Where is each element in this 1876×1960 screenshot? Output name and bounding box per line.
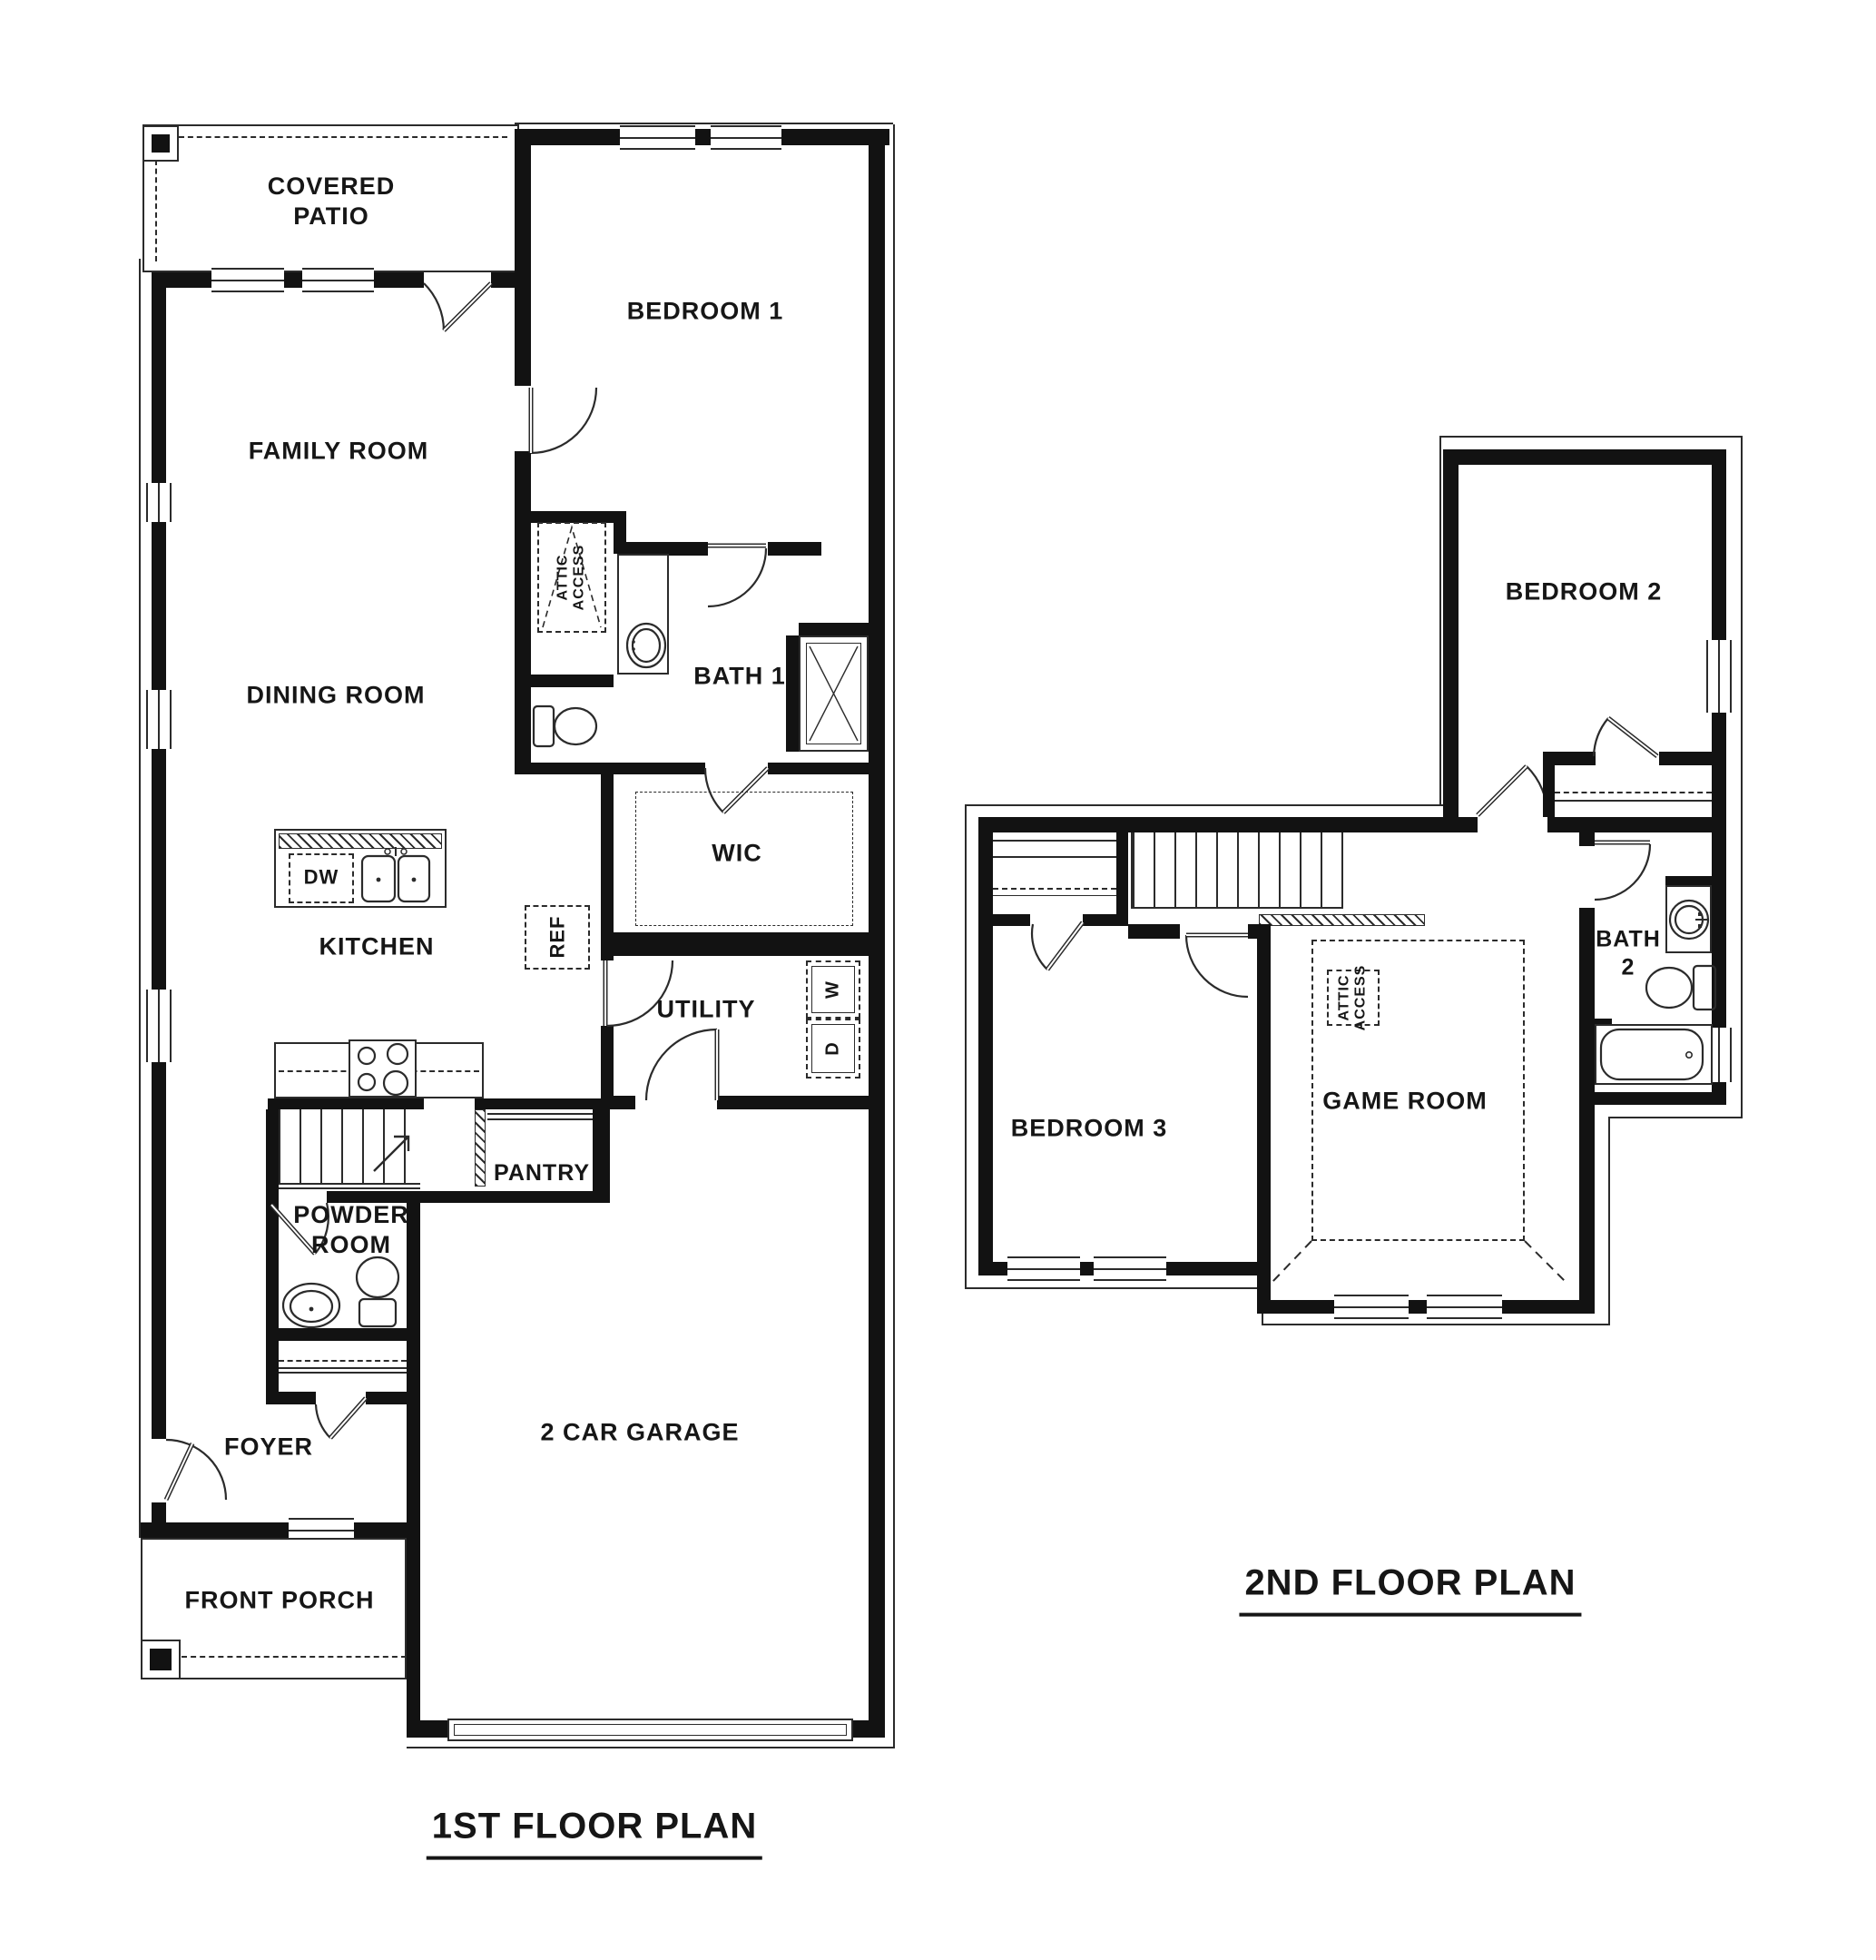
ref-label: REF [545,916,568,959]
wall [284,272,302,288]
wall [992,914,1030,926]
wall [1659,752,1712,765]
sink [624,622,668,669]
trim [965,1287,1263,1289]
wall [475,1098,601,1109]
wall [1409,1300,1427,1314]
patio-roof-dash [155,160,157,261]
wall [978,1262,1007,1275]
wall [799,623,869,635]
closet-rod [1555,792,1712,793]
wall [601,774,614,960]
porch-post [150,1649,172,1670]
attic-access-label: ATTIC ACCESS [555,545,589,611]
bedroom3-closet-door [1026,917,1089,980]
bedroom3-label: BEDROOM 3 [1011,1114,1168,1144]
patio-roof-dash [179,136,507,138]
stair-edge [279,1183,420,1185]
wall [515,145,531,386]
trim [1262,1324,1610,1325]
bath1-label: BATH 1 [693,662,786,692]
trim [965,804,1449,806]
bedroom3-door [1180,928,1257,1005]
wall [614,511,626,554]
powder-room-label: POWDER ROOM [293,1200,409,1260]
wic-label: WIC [706,837,767,871]
floor-plan-canvas: COVERED PATIO FAMILY ROOM DINING ROOM BE [0,0,1876,1960]
wall [515,763,626,774]
pantry-door [475,1109,486,1187]
window [1094,1256,1166,1281]
wall [1166,1262,1257,1275]
trim [965,804,967,1289]
closet-shelf [993,895,1116,896]
sink [1668,899,1712,942]
wall [853,1720,885,1738]
bedroom2-label: BEDROOM 2 [1506,577,1663,607]
wall [407,1203,420,1720]
window [1007,1256,1080,1281]
pantry-shelf [487,1113,593,1115]
stair-railing [1259,914,1425,926]
window [146,483,172,522]
closet-door [309,1389,372,1445]
powder-toilet [355,1256,402,1330]
game-room-label: GAME ROOM [1317,1085,1493,1118]
wall [695,129,711,145]
wall [407,1720,447,1738]
wall [152,272,166,483]
dryer-label: D [823,1041,844,1055]
bath1-door [699,540,776,617]
closet-shelf [279,1367,407,1369]
wall [1579,1028,1595,1092]
wall [768,763,869,774]
wall [1543,765,1555,817]
foyer-label: FOYER [224,1433,313,1463]
family-room-label: FAMILY ROOM [249,437,429,467]
wall [869,129,885,1738]
trim [407,1747,895,1748]
patio-door [413,268,499,345]
kitchen-label: KITCHEN [319,932,435,962]
stair-edge [279,1187,420,1189]
covered-patio-label: COVERED PATIO [268,172,396,231]
bath2-door [1588,835,1656,908]
wall [515,451,531,774]
closet-rod [993,888,1116,890]
trim [1608,1117,1743,1118]
shower-x [806,643,861,744]
wall [1579,1092,1726,1105]
porch-dash [182,1656,407,1658]
wall [141,1522,289,1538]
window [146,690,172,749]
closet-shelf [1555,800,1712,802]
trim [515,123,893,124]
range [348,1039,417,1098]
window [620,125,695,150]
wall [1502,1300,1579,1314]
window [711,125,781,150]
dining-room-label: DINING ROOM [247,681,426,711]
wall [152,522,166,690]
tray-corner-dashes [1262,1235,1588,1298]
trim [1439,436,1743,438]
wall [1271,1300,1334,1314]
washer-label: W [823,980,844,999]
utility-door-b [640,1021,726,1108]
wall [1080,1262,1094,1275]
wall [152,749,166,990]
tub-inner [1595,1024,1713,1085]
garage-label: 2 CAR GARAGE [540,1418,739,1448]
wall [978,817,993,1275]
garage-door-panel [454,1724,847,1736]
stair-edge [1133,907,1343,909]
wall [268,1098,424,1109]
toilet [1639,962,1716,1012]
wall [1443,449,1726,465]
front-door [145,1434,231,1507]
closet-rod [279,1360,407,1362]
wall [266,1328,420,1341]
wall [1665,876,1712,885]
wall [152,1062,166,1439]
front-porch-label: FRONT PORCH [185,1586,375,1616]
trim [139,259,141,1538]
powder-sink [281,1282,341,1329]
bedroom1-label: BEDROOM 1 [627,297,784,327]
wall [717,1096,869,1109]
patio-post [152,134,170,153]
wall [978,817,1459,832]
wall [1579,908,1595,1019]
trim [1608,1117,1610,1325]
wall [1443,449,1459,817]
pantry-label: PANTRY [494,1159,590,1187]
wall [1116,832,1128,914]
wall [1547,817,1726,832]
trim [1439,436,1441,806]
window [1334,1295,1409,1319]
wall [1083,914,1128,926]
wall [1257,939,1271,1262]
window [1427,1295,1502,1319]
wall [601,1096,635,1109]
wall [786,635,799,752]
bedroom2-closet-door [1588,708,1665,763]
attic-access-label: ATTIC ACCESS [1337,965,1370,1031]
dishwasher-label: DW [304,866,339,891]
wall [531,675,614,687]
kitchen-sink [357,845,436,907]
utility-label: UTILITY [657,995,756,1025]
first-floor-title: 1ST FLOOR PLAN [427,1805,762,1860]
window [146,990,172,1062]
trim [893,124,895,1747]
closet-shelf [993,840,1116,842]
closet-shelf [993,856,1116,858]
stairs-second-floor [1133,832,1343,909]
pantry-shelf [487,1118,593,1120]
bedroom1-door [508,381,608,463]
stair-up-arrow [367,1126,423,1178]
toilet [531,701,608,751]
wall [626,763,705,774]
wall [1128,924,1180,939]
wall [593,1109,610,1203]
window [302,268,374,292]
wall [1712,449,1726,640]
wall [515,129,620,145]
window [211,268,284,292]
closet-shelf [279,1372,407,1374]
trim [1741,436,1743,1118]
wall [1712,1082,1726,1092]
window [1706,640,1732,713]
wall [614,932,869,944]
second-floor-title: 2ND FLOOR PLAN [1239,1561,1581,1617]
stair-edge [1131,832,1133,909]
